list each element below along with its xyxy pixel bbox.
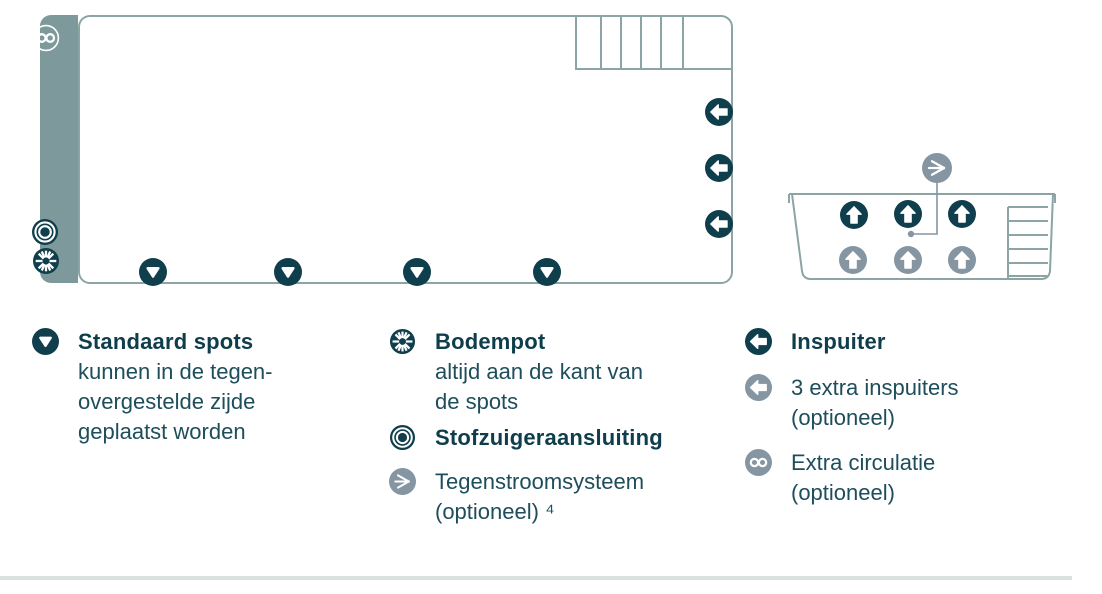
legend-line: (optioneel) (791, 403, 959, 433)
extra-inspuiter-icon (745, 374, 772, 401)
tegenstroom-icon (389, 468, 416, 495)
legend-item-stofzuigeraansluiting: Stofzuigeraansluiting (389, 423, 734, 453)
legend-line: de spots (435, 387, 643, 417)
spot-down-icon (403, 258, 431, 286)
step-divider (660, 17, 662, 68)
spot-down-icon (139, 258, 167, 286)
legend-title: Inspuiter (791, 327, 886, 357)
legend-item-extra-circulatie: Extra circulatie (optioneel) (745, 448, 1045, 508)
inspuiter-icon (705, 210, 733, 238)
step-divider (600, 17, 602, 68)
extra-inspuiter-up-icon (894, 246, 922, 274)
bottom-divider (0, 576, 1072, 580)
legend-line: (optioneel) ⁴ (435, 497, 644, 527)
stofzuiger-icon (31, 218, 59, 246)
spot-down-icon (274, 258, 302, 286)
pool-diagram: Standaard spots kunnen in de tegen- over… (0, 0, 1102, 594)
legend-line: overgestelde zijde (78, 387, 273, 417)
bodempot-icon (32, 247, 60, 275)
extra-circulatie-icon (745, 449, 772, 476)
inspuiter-up-icon (840, 201, 868, 229)
legend-col-1: Standaard spots kunnen in de tegen- over… (32, 327, 372, 447)
bodempot-icon (389, 328, 416, 355)
legend-title: Standaard spots (78, 327, 273, 357)
legend-item-tegenstroomsysteem: Tegenstroomsysteem (optioneel) ⁴ (389, 467, 734, 527)
legend-line: altijd aan de kant van (435, 357, 643, 387)
stofzuiger-icon (389, 424, 416, 451)
legend-line: Tegenstroomsysteem (435, 467, 644, 497)
step-divider (640, 17, 642, 68)
inspuiter-up-icon (894, 200, 922, 228)
legend-line: Extra circulatie (791, 448, 935, 478)
legend-line: kunnen in de tegen- (78, 357, 273, 387)
step-divider (620, 17, 622, 68)
pool-steps (575, 17, 731, 70)
legend-col-3: Inspuiter 3 extra inspuiters (optioneel) (745, 327, 1045, 508)
spot-down-icon (533, 258, 561, 286)
inspuiter-icon (745, 328, 772, 355)
step-divider (682, 17, 684, 68)
legend-title: Bodempot (435, 327, 643, 357)
infinity-icon (32, 24, 60, 52)
legend-line: 3 extra inspuiters (791, 373, 959, 403)
extra-inspuiter-up-icon (839, 246, 867, 274)
tegenstroom-icon (922, 153, 952, 183)
inspuiter-icon (705, 154, 733, 182)
inspuiter-icon (705, 98, 733, 126)
extra-inspuiter-up-icon (948, 246, 976, 274)
legend-item-inspuiter: Inspuiter (745, 327, 1045, 357)
legend-item-standaard-spots: Standaard spots kunnen in de tegen- over… (32, 327, 372, 447)
legend-col-2: Bodempot altijd aan de kant van de spots… (389, 327, 734, 527)
inspuiter-up-icon (948, 200, 976, 228)
legend-title: Stofzuigeraansluiting (435, 423, 663, 453)
legend-line: geplaatst worden (78, 417, 273, 447)
legend-line: (optioneel) (791, 478, 935, 508)
legend-item-extra-inspuiters: 3 extra inspuiters (optioneel) (745, 373, 1045, 433)
spot-down-icon (32, 328, 59, 355)
legend-item-bodempot: Bodempot altijd aan de kant van de spots (389, 327, 734, 417)
